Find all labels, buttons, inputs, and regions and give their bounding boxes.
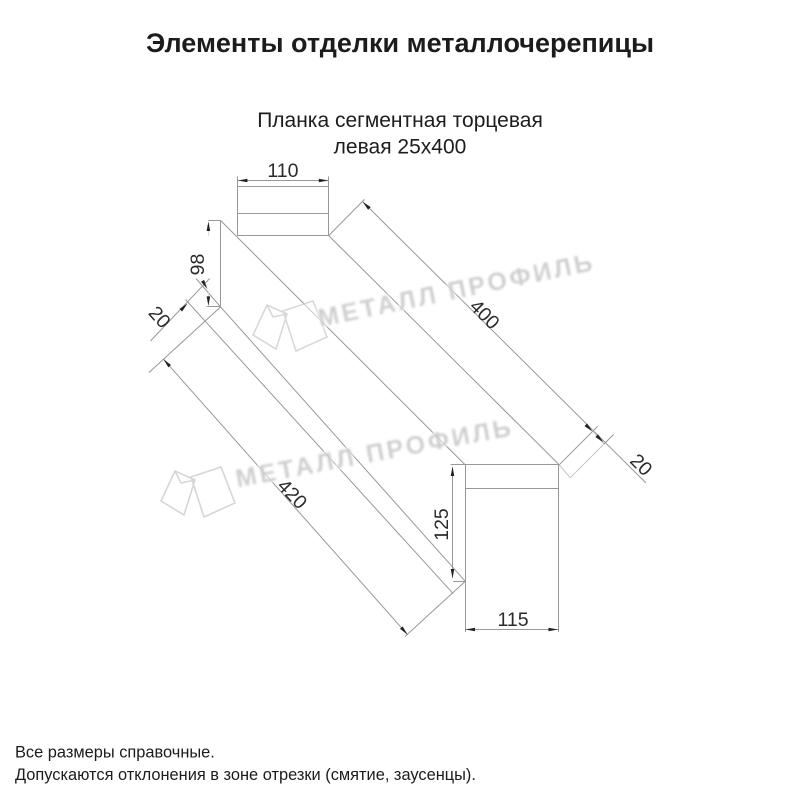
svg-text:Элементы отделки металлочерепи: Элементы отделки металлочерепицы: [146, 28, 654, 58]
svg-text:98: 98: [187, 254, 209, 276]
svg-text:Все размеры справочные.: Все размеры справочные.: [15, 744, 215, 762]
svg-text:Планка сегментная торцевая: Планка сегментная торцевая: [257, 109, 543, 132]
svg-text:110: 110: [267, 160, 298, 182]
svg-text:125: 125: [431, 508, 453, 541]
svg-text:Допускаются отклонения в зоне: Допускаются отклонения в зоне отрезки (с…: [15, 766, 476, 784]
svg-text:левая 25х400: левая 25х400: [334, 136, 467, 159]
svg-text:115: 115: [497, 609, 528, 631]
